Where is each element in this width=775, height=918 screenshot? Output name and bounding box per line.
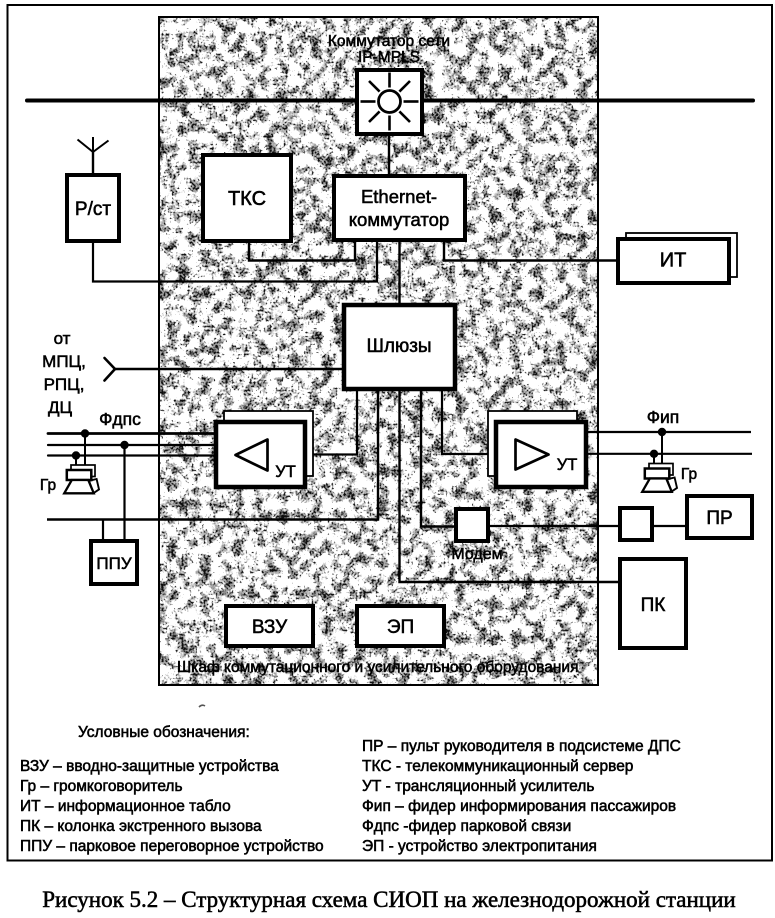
svg-text:Гр – громкоговоритель: Гр – громкоговоритель bbox=[20, 778, 183, 795]
svg-text:РПЦ,: РПЦ, bbox=[44, 375, 85, 394]
svg-text:ИТ: ИТ bbox=[660, 250, 687, 272]
svg-text:ВЗУ: ВЗУ bbox=[252, 617, 288, 638]
svg-text:ПК: ПК bbox=[641, 595, 666, 616]
svg-text:Шкаф коммутационного и усилите: Шкаф коммутационного и усилительного обо… bbox=[177, 659, 578, 676]
svg-text:ППУ: ППУ bbox=[96, 554, 131, 573]
svg-text:ЭП - устройство электропитания: ЭП - устройство электропитания bbox=[362, 838, 597, 855]
svg-text:Гр: Гр bbox=[681, 466, 697, 483]
svg-text:ПК – колонка экстренного вызов: ПК – колонка экстренного вызова bbox=[20, 818, 262, 835]
svg-text:Коммутатор сети: Коммутатор сети bbox=[328, 33, 450, 50]
svg-text:МПЦ,: МПЦ, bbox=[42, 352, 86, 371]
svg-text:УТ - трансляционный усилитель: УТ - трансляционный усилитель bbox=[362, 778, 594, 795]
svg-text:УТ: УТ bbox=[275, 463, 296, 481]
svg-text:Фдпс -фидер парковой связи: Фдпс -фидер парковой связи bbox=[362, 818, 571, 835]
svg-text:Р/ст: Р/ст bbox=[75, 199, 111, 220]
svg-text:Фип – фидер информирования пас: Фип – фидер информирования пассажиров bbox=[362, 798, 676, 815]
svg-text:Гр: Гр bbox=[40, 477, 56, 494]
svg-text:ТКС: ТКС bbox=[228, 188, 266, 210]
svg-text:Модем: Модем bbox=[451, 546, 502, 563]
svg-text:ЭП: ЭП bbox=[387, 617, 414, 638]
svg-text:IP-MPLS: IP-MPLS bbox=[358, 49, 420, 66]
svg-text:ИТ – информационное табло: ИТ – информационное табло bbox=[20, 798, 231, 815]
svg-text:Фдпс: Фдпс bbox=[99, 409, 141, 429]
svg-text:ВЗУ – вводно-защитные устройст: ВЗУ – вводно-защитные устройства bbox=[20, 758, 279, 775]
svg-text:ПР: ПР bbox=[706, 508, 732, 529]
svg-text:Фип: Фип bbox=[647, 407, 680, 427]
svg-text:ТКС - телекоммуникационный сер: ТКС - телекоммуникационный сервер bbox=[362, 758, 633, 775]
svg-text:ДЦ: ДЦ bbox=[48, 398, 73, 417]
svg-text:Условные обозначения:: Условные обозначения: bbox=[78, 724, 250, 741]
svg-text:ПР – пульт руководителя в подс: ПР – пульт руководителя в подсистеме ДПС bbox=[362, 738, 681, 755]
svg-text:Ethernet-: Ethernet- bbox=[361, 186, 437, 207]
svg-text:Рисунок 5.2 – Структурная схем: Рисунок 5.2 – Структурная схема СИОП на … bbox=[42, 887, 735, 912]
svg-text:от: от bbox=[54, 329, 71, 348]
svg-text:коммутатор: коммутатор bbox=[349, 209, 449, 230]
svg-text:Шлюзы: Шлюзы bbox=[366, 336, 431, 357]
svg-text:УТ: УТ bbox=[557, 456, 578, 474]
svg-text:ППУ – парковое переговорное ус: ППУ – парковое переговорное устройство bbox=[20, 838, 324, 855]
